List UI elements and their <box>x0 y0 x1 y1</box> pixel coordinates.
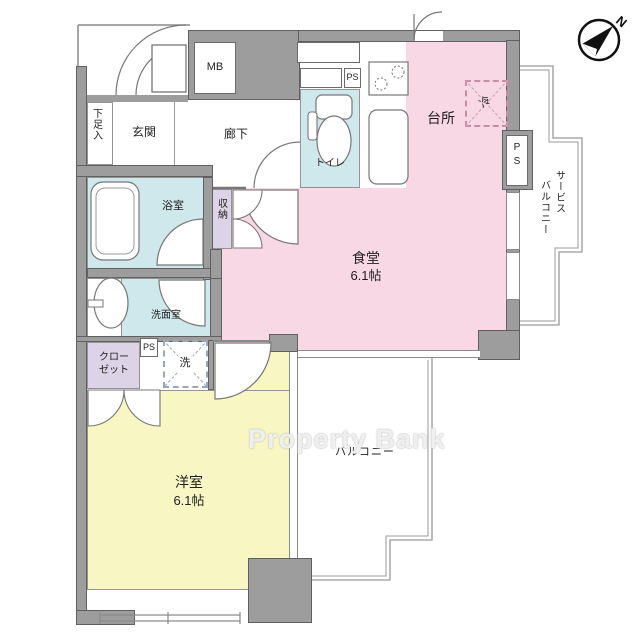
room-toilet <box>300 89 360 188</box>
wall-left <box>76 66 87 625</box>
label-ps-mid: PS <box>140 342 158 352</box>
compass: N <box>579 13 630 60</box>
stove-burner-2 <box>392 66 404 78</box>
window-right-1 <box>506 192 520 250</box>
room-bathroom <box>87 177 204 269</box>
label-dining: 食堂 <box>336 250 396 266</box>
label-washroom: 洗面室 <box>138 310 194 322</box>
label-shoe-storage: 下足入 <box>90 108 102 141</box>
entrance-door-arc-outer <box>116 25 186 95</box>
balcony-outline-outer <box>312 358 432 580</box>
label-toilet: トイレ <box>302 158 358 170</box>
stove-burner-1 <box>375 78 387 90</box>
compass-needle <box>583 26 613 56</box>
label-western-room-size: 6.1帖 <box>159 494 219 509</box>
room-washroom <box>121 278 211 338</box>
label-closet-2: ゼット <box>90 365 138 377</box>
washroom-counter <box>87 278 122 338</box>
floor-plan: N 下足入 玄関 MB 廊下 トイレ PS 台所 冷 PS サービス バルコニー… <box>0 0 640 640</box>
watermark: Property Bank <box>248 424 446 455</box>
window-right-2 <box>506 252 520 300</box>
label-service-balcony-1: サービス <box>553 170 565 214</box>
label-service-balcony-2: バルコニー <box>538 180 550 235</box>
label-dining-size: 6.1帖 <box>336 269 396 284</box>
porch-outline <box>78 25 190 66</box>
wall-bottom-left-foot <box>76 610 135 625</box>
wall-washroom-right <box>210 278 222 340</box>
stove <box>369 62 408 95</box>
wall-washer-right <box>208 340 214 390</box>
room-western-upper <box>213 348 292 392</box>
wall-block-bottom-right <box>248 558 312 623</box>
label-storage: 収納 <box>215 198 227 220</box>
kitchen-sink <box>369 110 408 184</box>
compass-needle-notch <box>583 44 597 57</box>
wall-below-entrance <box>76 165 213 177</box>
counter-top-1 <box>297 42 360 63</box>
label-bathroom: 浴室 <box>148 200 198 213</box>
entrance-door-arc-inner <box>136 45 186 95</box>
label-kitchen: 台所 <box>413 110 469 126</box>
wall-top <box>298 30 520 42</box>
label-meter-box: MB <box>194 61 236 74</box>
wall-below-storage <box>210 249 222 280</box>
label-entrance: 玄関 <box>116 126 172 140</box>
wall-corner-western-tr <box>269 334 298 352</box>
compass-circle <box>579 20 619 60</box>
entrance-door-leaf <box>152 45 186 92</box>
counter-top-2 <box>300 68 342 88</box>
label-corridor: 廊下 <box>210 128 262 142</box>
label-closet-1: クロー <box>90 352 138 364</box>
toilet-door-arc <box>254 142 300 188</box>
wall-corner-dining-tr <box>478 330 520 360</box>
wall-bath-bottom <box>87 268 213 278</box>
service-balcony-outline-outer <box>520 66 582 325</box>
label-washer: 洗 <box>174 357 196 370</box>
window-dining-bottom <box>298 350 480 358</box>
wall-porch-strip <box>87 95 188 102</box>
label-ps-right: PS <box>511 142 523 170</box>
window-western-right <box>289 352 298 558</box>
compass-north-label: N <box>613 13 630 31</box>
label-ps-hall: PS <box>344 72 361 82</box>
door-gap-kitchen-top <box>415 31 443 41</box>
balcony-outline-inner <box>312 360 428 576</box>
label-western-room: 洋室 <box>159 474 219 490</box>
